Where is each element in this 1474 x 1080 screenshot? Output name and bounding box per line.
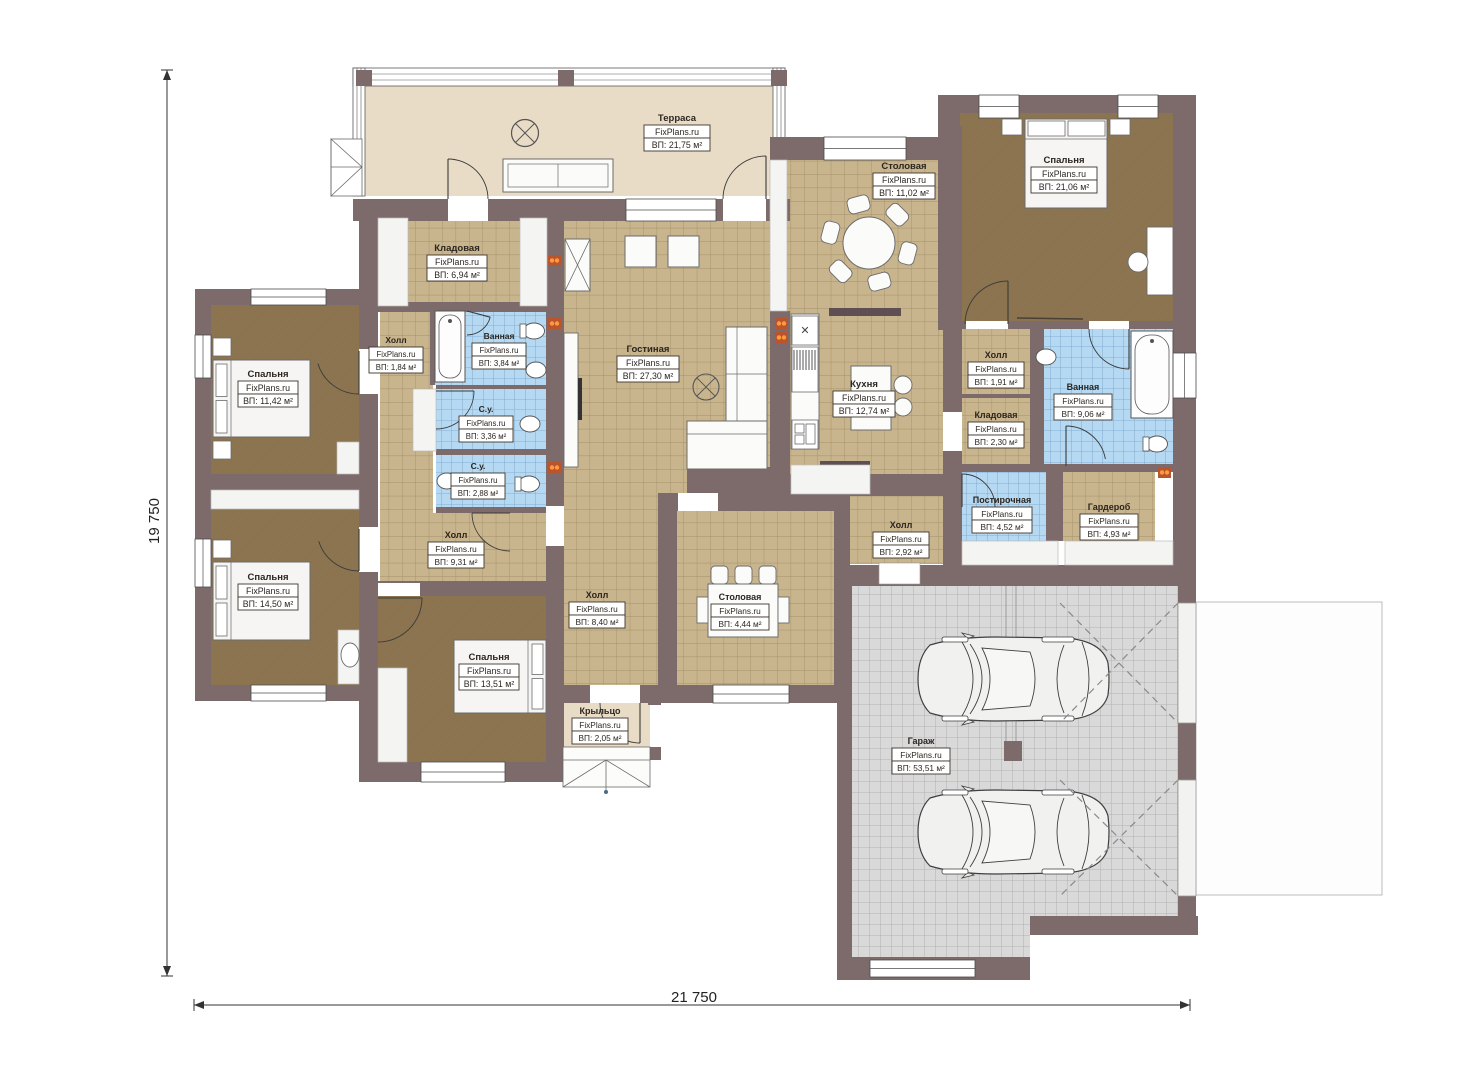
svg-text:Ванная: Ванная [484, 331, 515, 341]
svg-text:ВП: 2,88 м²: ВП: 2,88 м² [458, 489, 499, 498]
svg-text:FixPlans.ru: FixPlans.ru [480, 346, 519, 355]
svg-text:Кладовая: Кладовая [434, 243, 480, 254]
svg-text:С.у.: С.у. [479, 404, 494, 414]
svg-text:С.у.: С.у. [471, 461, 486, 471]
svg-text:FixPlans.ru: FixPlans.ru [626, 358, 670, 368]
svg-text:FixPlans.ru: FixPlans.ru [1042, 169, 1086, 179]
svg-text:FixPlans.ru: FixPlans.ru [981, 509, 1023, 519]
svg-text:FixPlans.ru: FixPlans.ru [842, 393, 886, 403]
svg-text:Гараж: Гараж [908, 736, 935, 746]
svg-text:Спальня: Спальня [468, 652, 509, 663]
svg-text:Холл: Холл [385, 335, 406, 345]
svg-text:FixPlans.ru: FixPlans.ru [467, 666, 511, 676]
svg-text:FixPlans.ru: FixPlans.ru [246, 586, 290, 596]
svg-text:ВП: 4,52 м²: ВП: 4,52 м² [980, 522, 1023, 532]
svg-text:Постирочная: Постирочная [973, 495, 1031, 505]
svg-text:✕: ✕ [800, 325, 809, 337]
svg-text:Столовая: Столовая [719, 592, 762, 602]
svg-text:ВП: 4,44 м²: ВП: 4,44 м² [718, 619, 761, 629]
svg-text:FixPlans.ru: FixPlans.ru [435, 257, 479, 267]
svg-text:ВП: 21,75 м²: ВП: 21,75 м² [652, 140, 703, 150]
svg-text:Холл: Холл [445, 530, 468, 540]
svg-text:Холл: Холл [586, 590, 609, 600]
svg-text:FixPlans.ru: FixPlans.ru [435, 544, 477, 554]
svg-text:FixPlans.ru: FixPlans.ru [579, 720, 621, 730]
svg-text:ВП: 1,84 м²: ВП: 1,84 м² [376, 363, 417, 372]
svg-text:ВП: 2,92 м²: ВП: 2,92 м² [879, 547, 922, 557]
svg-text:ВП: 12,74 м²: ВП: 12,74 м² [839, 406, 890, 416]
svg-text:ВП: 3,36 м²: ВП: 3,36 м² [466, 432, 507, 441]
svg-text:Ванная: Ванная [1067, 382, 1100, 392]
svg-text:ВП: 14,50 м²: ВП: 14,50 м² [243, 599, 294, 609]
svg-text:FixPlans.ru: FixPlans.ru [246, 383, 290, 393]
svg-text:ВП: 9,31 м²: ВП: 9,31 м² [434, 557, 477, 567]
svg-text:Терраса: Терраса [658, 113, 697, 124]
svg-text:FixPlans.ru: FixPlans.ru [459, 476, 498, 485]
svg-text:FixPlans.ru: FixPlans.ru [975, 364, 1017, 374]
svg-text:Гостиная: Гостиная [627, 344, 670, 355]
svg-text:ВП: 11,42 м²: ВП: 11,42 м² [243, 396, 293, 406]
svg-text:FixPlans.ru: FixPlans.ru [880, 534, 922, 544]
svg-text:FixPlans.ru: FixPlans.ru [1088, 516, 1130, 526]
svg-text:ВП: 6,94 м²: ВП: 6,94 м² [434, 270, 480, 280]
svg-text:ВП: 53,51 м²: ВП: 53,51 м² [897, 763, 945, 773]
svg-text:Гардероб: Гардероб [1088, 502, 1131, 512]
svg-text:ВП: 2,30 м²: ВП: 2,30 м² [974, 437, 1017, 447]
svg-text:ВП: 2,05 м²: ВП: 2,05 м² [578, 733, 621, 743]
svg-text:ВП: 8,40 м²: ВП: 8,40 м² [575, 617, 618, 627]
svg-text:ВП: 11,02 м²: ВП: 11,02 м² [879, 188, 929, 198]
svg-text:ВП: 27,30 м²: ВП: 27,30 м² [623, 371, 674, 381]
svg-text:Крыльцо: Крыльцо [580, 706, 621, 716]
svg-text:Спальня: Спальня [247, 369, 288, 380]
svg-text:Холл: Холл [890, 520, 913, 530]
svg-text:FixPlans.ru: FixPlans.ru [900, 750, 942, 760]
svg-text:FixPlans.ru: FixPlans.ru [377, 350, 416, 359]
svg-text:Столовая: Столовая [881, 161, 926, 172]
svg-text:ВП: 13,51 м²: ВП: 13,51 м² [464, 679, 515, 689]
svg-text:Спальня: Спальня [247, 572, 288, 583]
svg-text:FixPlans.ru: FixPlans.ru [882, 175, 926, 185]
svg-text:Холл: Холл [985, 350, 1008, 360]
svg-text:ВП: 1,91 м²: ВП: 1,91 м² [974, 377, 1017, 387]
svg-text:FixPlans.ru: FixPlans.ru [975, 424, 1017, 434]
svg-text:ВП: 9,06 м²: ВП: 9,06 м² [1061, 409, 1104, 419]
svg-text:Кухня: Кухня [850, 379, 878, 390]
svg-text:FixPlans.ru: FixPlans.ru [655, 127, 699, 137]
svg-text:Спальня: Спальня [1043, 155, 1084, 166]
svg-text:FixPlans.ru: FixPlans.ru [1062, 396, 1104, 406]
svg-text:ВП: 3,84 м²: ВП: 3,84 м² [479, 359, 520, 368]
svg-text:Кладовая: Кладовая [974, 410, 1017, 420]
svg-text:FixPlans.ru: FixPlans.ru [576, 604, 618, 614]
svg-text:21 750: 21 750 [671, 989, 717, 1006]
svg-text:FixPlans.ru: FixPlans.ru [467, 419, 506, 428]
svg-text:ВП: 4,93 м²: ВП: 4,93 м² [1087, 529, 1130, 539]
svg-text:FixPlans.ru: FixPlans.ru [719, 606, 761, 616]
svg-text:ВП: 21,06 м²: ВП: 21,06 м² [1039, 182, 1090, 192]
svg-text:19 750: 19 750 [146, 498, 163, 544]
